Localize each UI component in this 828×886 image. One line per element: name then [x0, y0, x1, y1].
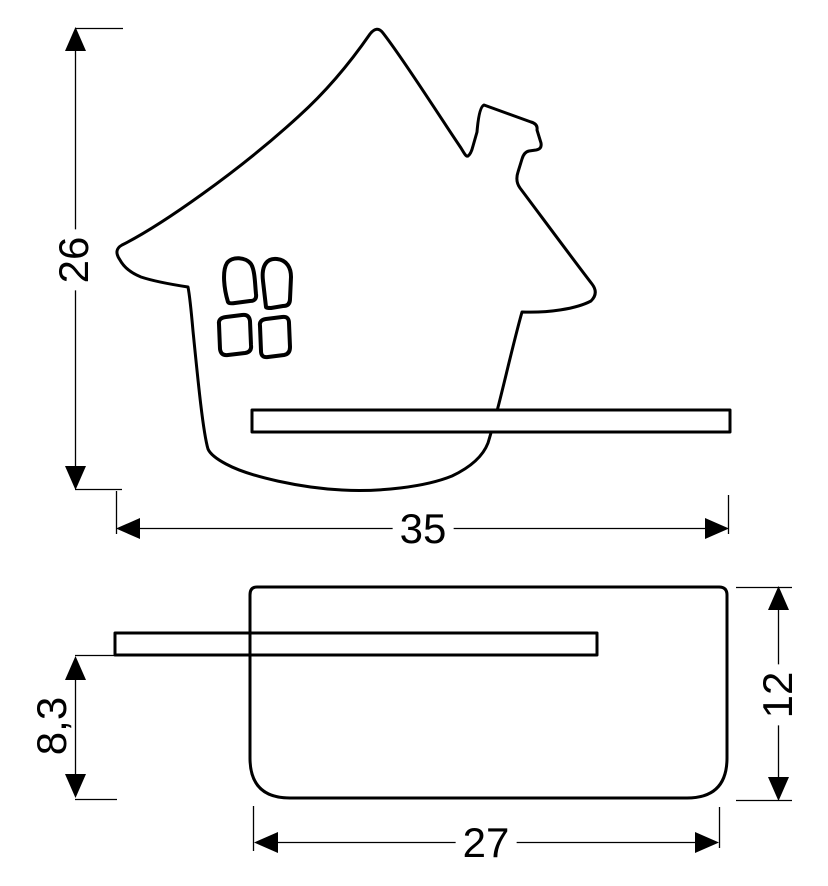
arrowhead-right — [705, 518, 729, 539]
side-view — [115, 587, 727, 798]
front-view — [117, 29, 730, 490]
dimension-label-front-width: 35 — [393, 507, 454, 551]
dimension-label-front-height: 26 — [52, 230, 96, 291]
window-pane-bottom-right — [260, 317, 290, 357]
body-side-outline — [250, 587, 727, 798]
shelf-front — [252, 410, 730, 432]
arrowhead-up — [65, 656, 86, 680]
arrowhead-down — [768, 777, 789, 801]
technical-drawing-canvas: 26 35 8,3 12 27 — [0, 0, 828, 886]
arrowhead-left — [116, 518, 140, 539]
shelf-side — [115, 633, 597, 655]
arrowhead-down — [65, 774, 86, 798]
arrowhead-up — [65, 27, 86, 51]
dimension-drawing — [0, 0, 828, 886]
arrowhead-down — [65, 466, 86, 490]
arrowhead-up — [768, 586, 789, 610]
window-pane-bottom-left — [219, 315, 251, 355]
dimension-label-base-width: 27 — [456, 821, 517, 865]
arrowhead-left — [254, 832, 278, 853]
window-pane-top-right — [263, 259, 291, 308]
window-pane-top-left — [224, 258, 256, 303]
dimension-label-side-depth: 12 — [756, 665, 800, 726]
dimension-label-shelf-height: 8,3 — [30, 690, 74, 762]
arrowhead-right — [695, 832, 719, 853]
